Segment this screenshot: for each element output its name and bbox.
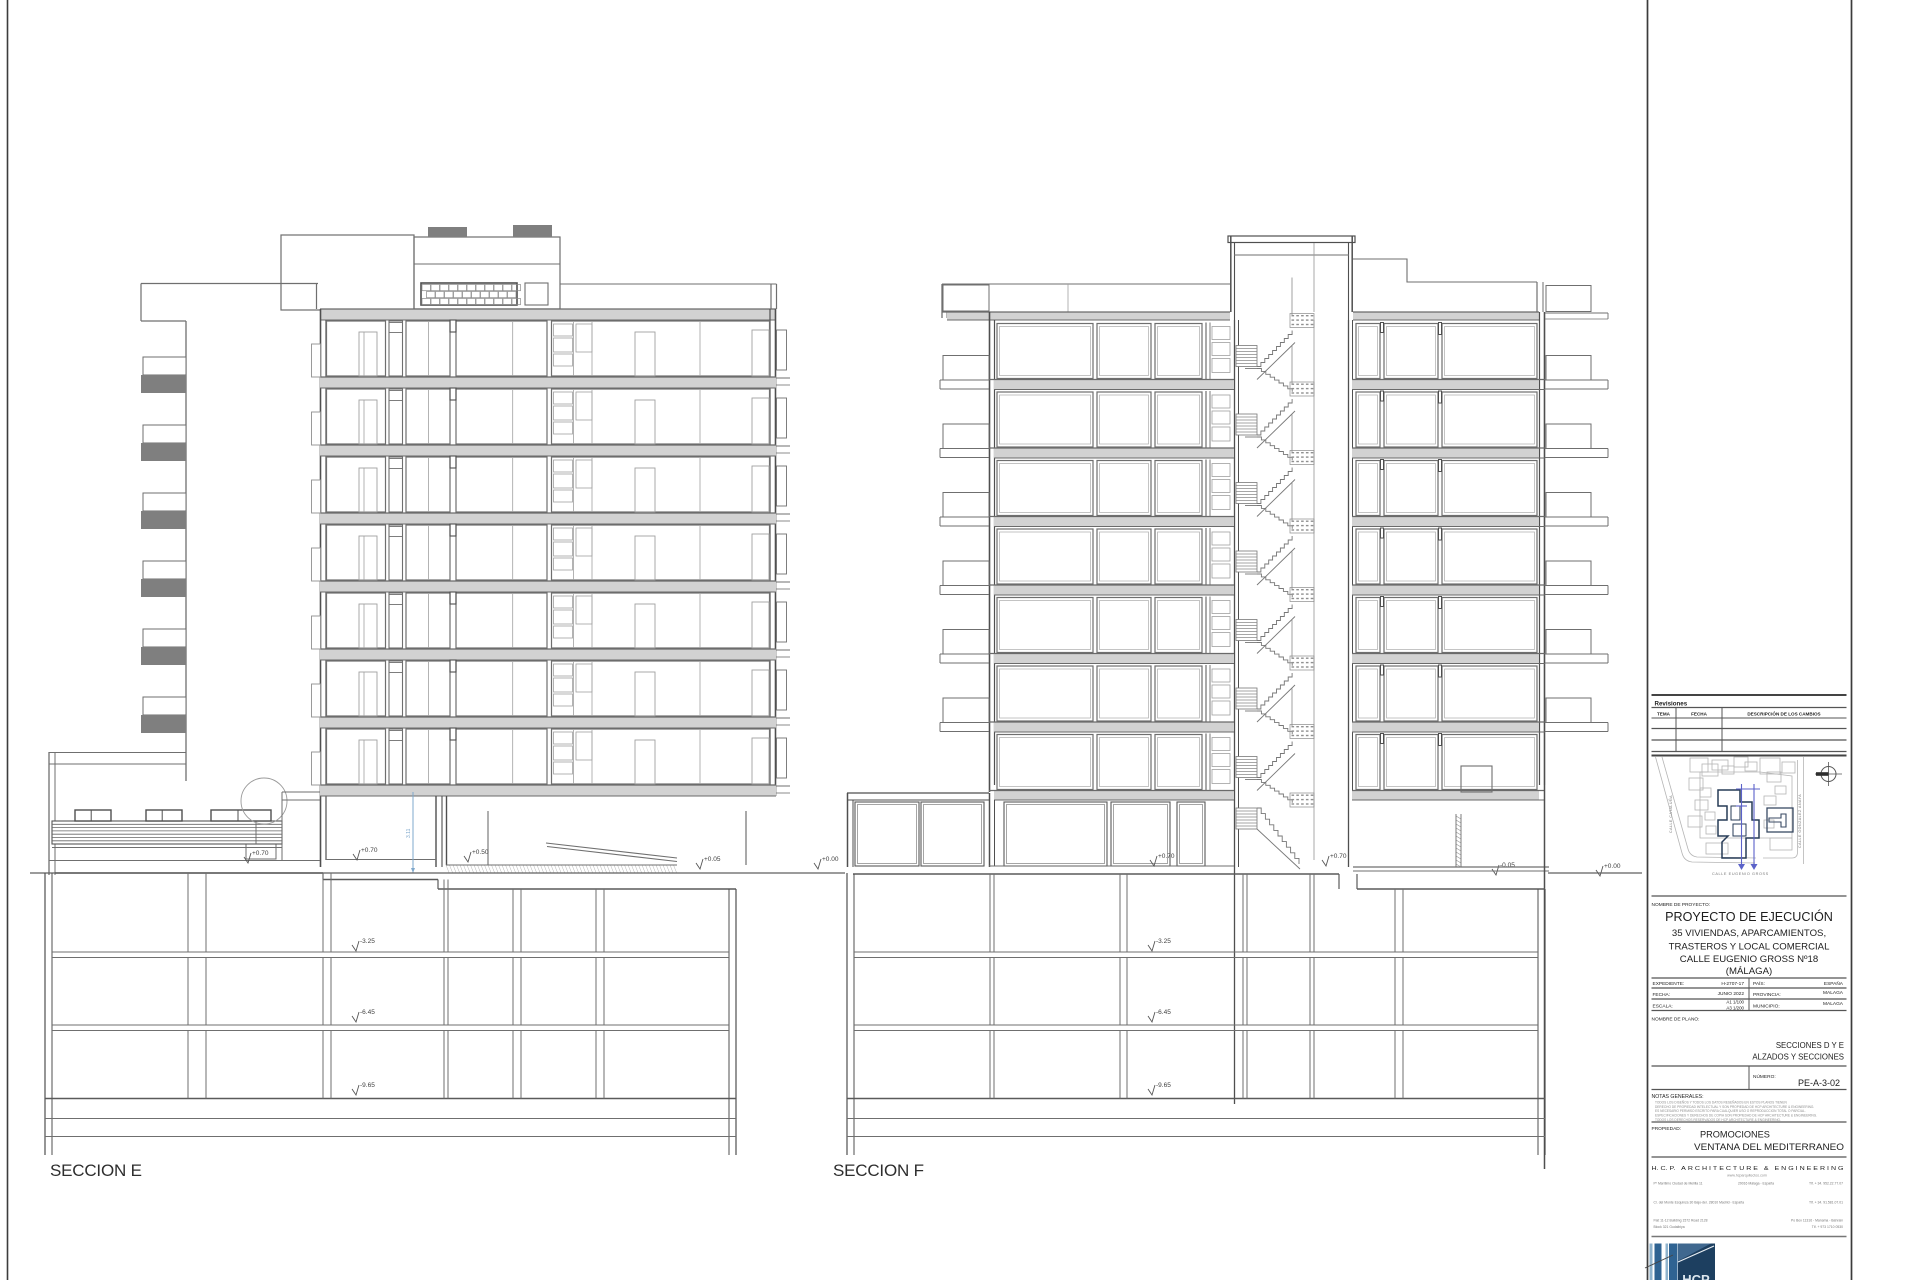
- svg-text:29016 Málaga - España: 29016 Málaga - España: [1738, 1182, 1774, 1186]
- svg-text:+0.00: +0.00: [1604, 863, 1621, 870]
- svg-text:H. C. P. A R C H I T E C T U: H. C. P. A R C H I T E C T U R E & E N G…: [1652, 1166, 1844, 1172]
- svg-text:+0.05: +0.05: [704, 856, 721, 863]
- svg-text:Po Box 11316 - Manama - Bahrai: Po Box 11316 - Manama - Bahrain: [1791, 1219, 1843, 1223]
- svg-text:-0.05: -0.05: [1500, 862, 1515, 869]
- svg-text:Flat 11-12 Building 1572 Road: Flat 11-12 Building 1572 Road 2128: [1654, 1219, 1708, 1223]
- svg-text:Revisiones: Revisiones: [1655, 701, 1688, 708]
- svg-text:TODOS LOS DISEÑOS Y TODOS LOS: TODOS LOS DISEÑOS Y TODOS LOS DATOS RESE…: [1655, 1100, 1787, 1105]
- svg-text:-3.25: -3.25: [1156, 938, 1171, 945]
- svg-text:Block 321 Gudaibiya: Block 321 Gudaibiya: [1654, 1225, 1685, 1229]
- svg-text:ESCALA:: ESCALA:: [1653, 1004, 1673, 1010]
- svg-text:EXPEDIENTE:: EXPEDIENTE:: [1653, 981, 1685, 987]
- svg-text:-3.25: -3.25: [360, 938, 375, 945]
- svg-text:A3 1/200: A3 1/200: [1726, 1006, 1744, 1011]
- svg-text:www.hcparquitectos.com: www.hcparquitectos.com: [1727, 1174, 1767, 1178]
- svg-text:SECCION E: SECCION E: [50, 1161, 142, 1180]
- svg-text:CALLE EUGENIO GROSS Nº18: CALLE EUGENIO GROSS Nº18: [1680, 954, 1818, 965]
- svg-text:Pº Marítimo Ciudad de Melilla: Pº Marítimo Ciudad de Melilla 11: [1654, 1182, 1703, 1186]
- svg-text:+0.50: +0.50: [472, 849, 489, 856]
- svg-text:JUNIO 2022: JUNIO 2022: [1718, 991, 1745, 997]
- svg-text:A1 1/100: A1 1/100: [1726, 1000, 1744, 1005]
- svg-text:PROPIEDAD:: PROPIEDAD:: [1652, 1126, 1682, 1132]
- svg-text:-9.65: -9.65: [360, 1082, 375, 1089]
- svg-text:CALLE EUGENIO GROSS: CALLE EUGENIO GROSS: [1712, 872, 1769, 876]
- svg-text:CALLE GONZALEZ ANAYA: CALLE GONZALEZ ANAYA: [1798, 794, 1802, 848]
- svg-text:PROVINCIA:: PROVINCIA:: [1753, 992, 1781, 998]
- svg-text:35 VIVIENDAS, APARCAMIENTOS,: 35 VIVIENDAS, APARCAMIENTOS,: [1672, 928, 1826, 939]
- svg-text:MALAGA: MALAGA: [1823, 1001, 1844, 1007]
- svg-text:(MÁLAGA): (MÁLAGA): [1726, 966, 1772, 977]
- svg-text:C/. del Monte Esquinza 30 Bajo: C/. del Monte Esquinza 30 Bajo-der. 2801…: [1654, 1201, 1745, 1205]
- svg-text:TEMA: TEMA: [1657, 712, 1671, 717]
- svg-text:NOMBRE DE PLANO:: NOMBRE DE PLANO:: [1652, 1017, 1700, 1023]
- svg-text:HCP: HCP: [1682, 1272, 1710, 1280]
- svg-text:NÚMERO:: NÚMERO:: [1753, 1073, 1776, 1080]
- svg-text:FECHA:: FECHA:: [1653, 992, 1671, 998]
- svg-text:ESPAÑA: ESPAÑA: [1824, 980, 1844, 987]
- svg-text:+0.70: +0.70: [1158, 853, 1175, 860]
- svg-text:PAÍS:: PAÍS:: [1753, 980, 1765, 987]
- svg-text:-6.45: -6.45: [360, 1009, 375, 1016]
- svg-text:3.11: 3.11: [406, 828, 412, 838]
- svg-text:CALLE CATALUÑA: CALLE CATALUÑA: [1668, 795, 1673, 833]
- svg-text:H-2707-17: H-2707-17: [1721, 981, 1744, 987]
- svg-text:PROMOCIONES: PROMOCIONES: [1700, 1130, 1770, 1140]
- svg-text:Tlf. + 34. 952.22.77.07: Tlf. + 34. 952.22.77.07: [1809, 1182, 1843, 1186]
- svg-text:+0.70: +0.70: [1330, 853, 1347, 860]
- svg-text:NOTAS GENERALES:: NOTAS GENERALES:: [1652, 1094, 1704, 1100]
- svg-text:SECCIONES D Y E: SECCIONES D Y E: [1776, 1041, 1844, 1050]
- svg-text:VENTANA DEL MEDITERRANEO: VENTANA DEL MEDITERRANEO: [1694, 1142, 1844, 1152]
- svg-text:Tlf. + 34. 91.581.07.01: Tlf. + 34. 91.581.07.01: [1809, 1201, 1843, 1205]
- svg-text:+0.70: +0.70: [252, 850, 269, 857]
- svg-text:PE-A-3-02: PE-A-3-02: [1798, 1078, 1840, 1088]
- svg-text:NOMBRE DE PROYECTO:: NOMBRE DE PROYECTO:: [1652, 902, 1711, 908]
- svg-text:-6.45: -6.45: [1156, 1009, 1171, 1016]
- svg-text:+0.70: +0.70: [361, 847, 378, 854]
- svg-text:ALZADOS Y SECCIONES: ALZADOS Y SECCIONES: [1752, 1053, 1844, 1062]
- svg-text:MALAGA: MALAGA: [1823, 990, 1844, 996]
- svg-text:+0.00: +0.00: [822, 856, 839, 863]
- svg-text:FECHA: FECHA: [1691, 712, 1708, 717]
- svg-text:PROYECTO DE EJECUCIÓN: PROYECTO DE EJECUCIÓN: [1665, 909, 1833, 924]
- svg-text:TRASTEROS Y LOCAL COMERCIAL: TRASTEROS Y LOCAL COMERCIAL: [1669, 942, 1830, 953]
- svg-text:MUNICIPIO:: MUNICIPIO:: [1753, 1004, 1780, 1010]
- svg-text:Tlf. + 973 1710 0530: Tlf. + 973 1710 0530: [1812, 1225, 1843, 1229]
- svg-text:DESCRIPCIÓN DE LOS CAMBIOS: DESCRIPCIÓN DE LOS CAMBIOS: [1747, 710, 1820, 717]
- svg-text:SECCION F: SECCION F: [833, 1161, 924, 1180]
- svg-text:-9.65: -9.65: [1156, 1082, 1171, 1089]
- svg-text:TODOS LOS DERECHOS RESERVADOS: TODOS LOS DERECHOS RESERVADOS DE HCP ARC…: [1655, 1118, 1781, 1122]
